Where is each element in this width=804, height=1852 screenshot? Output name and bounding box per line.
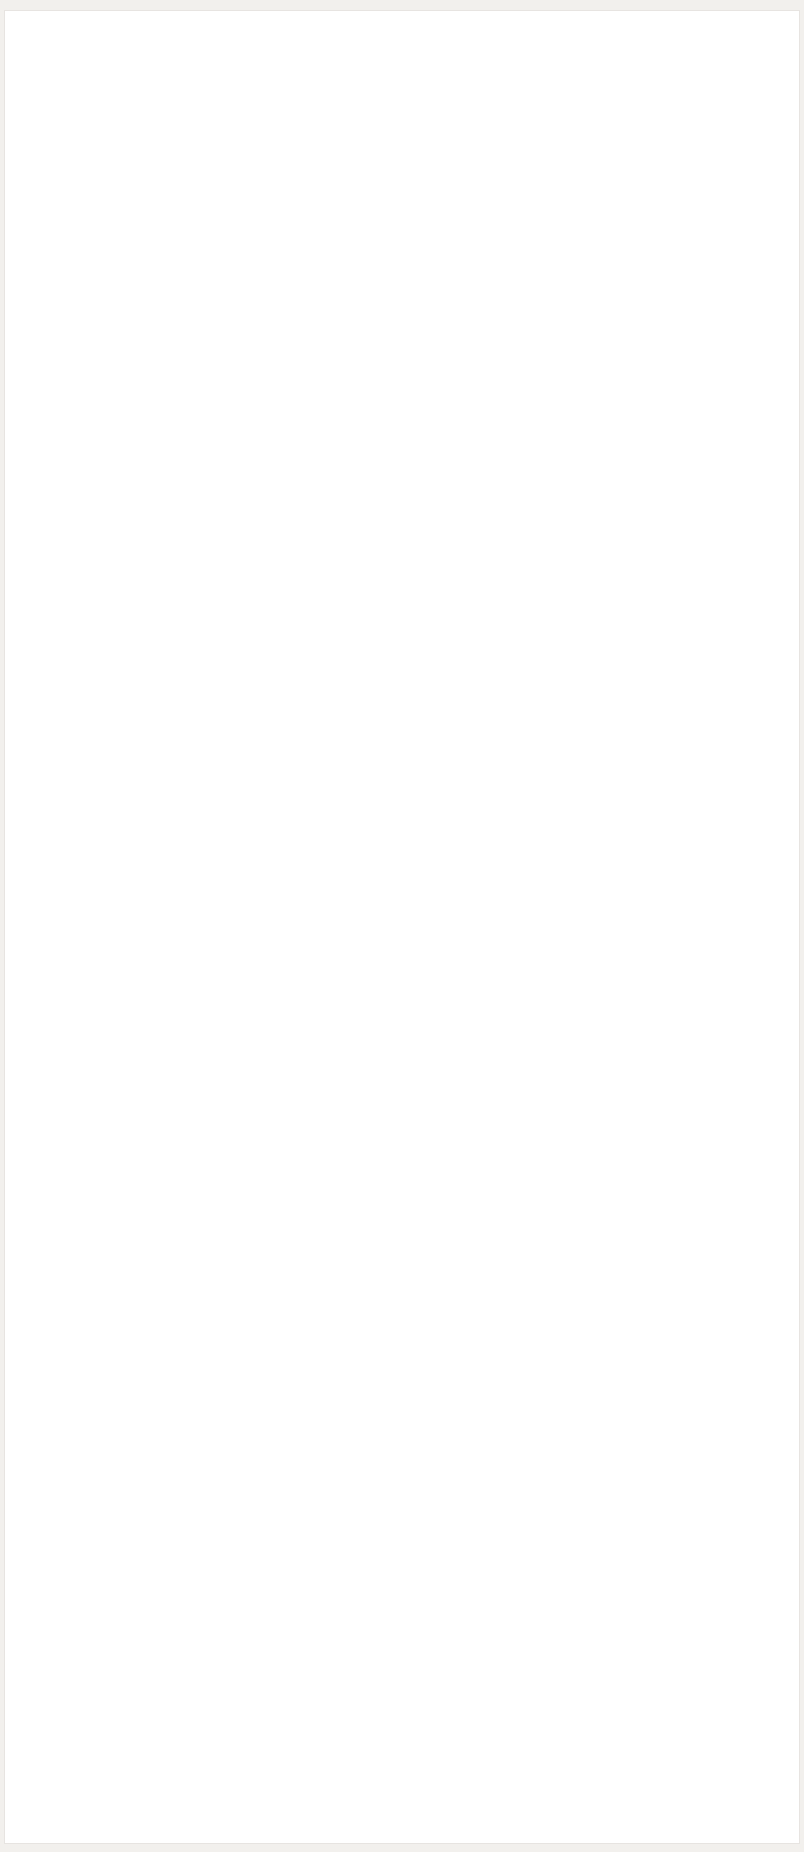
drawing-card <box>4 10 800 1844</box>
two-post-lift-diagram-page: 2780 мм 3602 мм 1817-1922 мм 89-197 мм <box>0 0 804 1852</box>
